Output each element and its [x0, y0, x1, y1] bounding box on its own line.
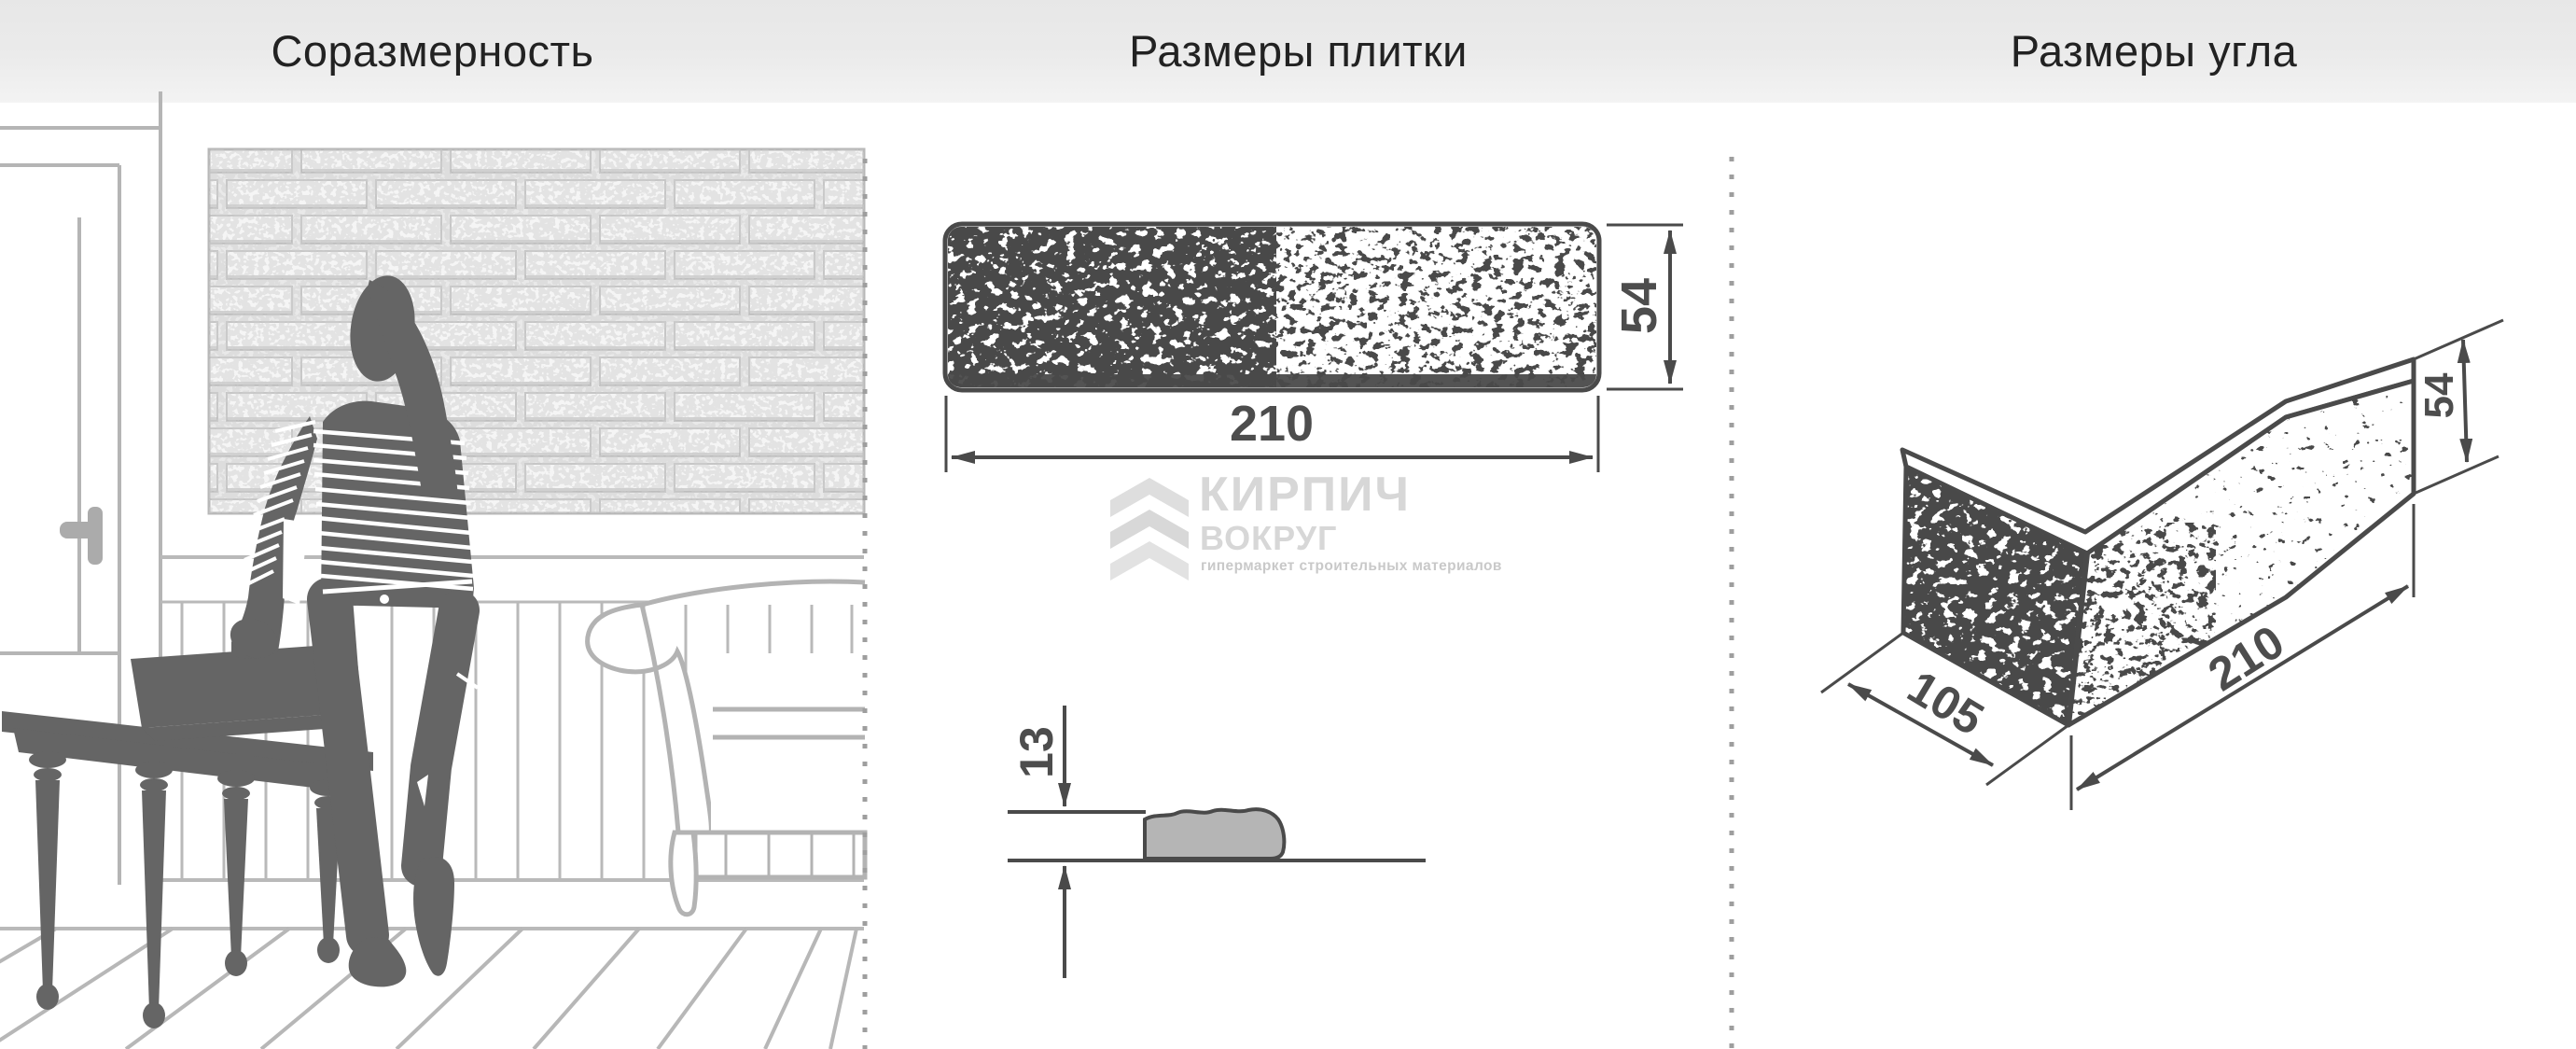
tile-profile-slab — [1145, 809, 1284, 859]
brick-logo-icon — [1106, 469, 1194, 585]
arm-gap — [283, 519, 308, 605]
tile-width-label: 210 — [1230, 396, 1314, 452]
watermark-logo: КИРПИЧ ВОКРУГ гипермаркет строительных м… — [1106, 465, 1497, 586]
watermark-tagline: гипермаркет строительных материалов — [1201, 558, 1502, 575]
table — [2, 711, 373, 1028]
table-leg — [29, 735, 66, 1010]
table-leg — [135, 746, 173, 1028]
tile-profile-view: 13 — [1008, 706, 1426, 978]
tile-dimensions-drawing: 210 54 13 — [945, 224, 1683, 978]
corner-dimensions-drawing: 105 210 54 — [1821, 320, 2503, 810]
infographic: Соразмерность Размеры плитки Размеры угл… — [0, 0, 2576, 1049]
sofa-leg — [671, 832, 696, 915]
tile-height-label: 54 — [1611, 278, 1667, 334]
watermark-brand-line2: ВОКРУГ — [1200, 519, 1337, 558]
watermark-brand-line1: КИРПИЧ — [1199, 467, 1411, 523]
laptop — [131, 646, 338, 741]
tile-thickness-label: 13 — [1010, 726, 1063, 778]
jeans-button — [380, 594, 389, 604]
sofa — [588, 581, 865, 915]
corner-height-label: 54 — [2416, 372, 2462, 418]
proportionality-scene — [0, 91, 865, 1049]
